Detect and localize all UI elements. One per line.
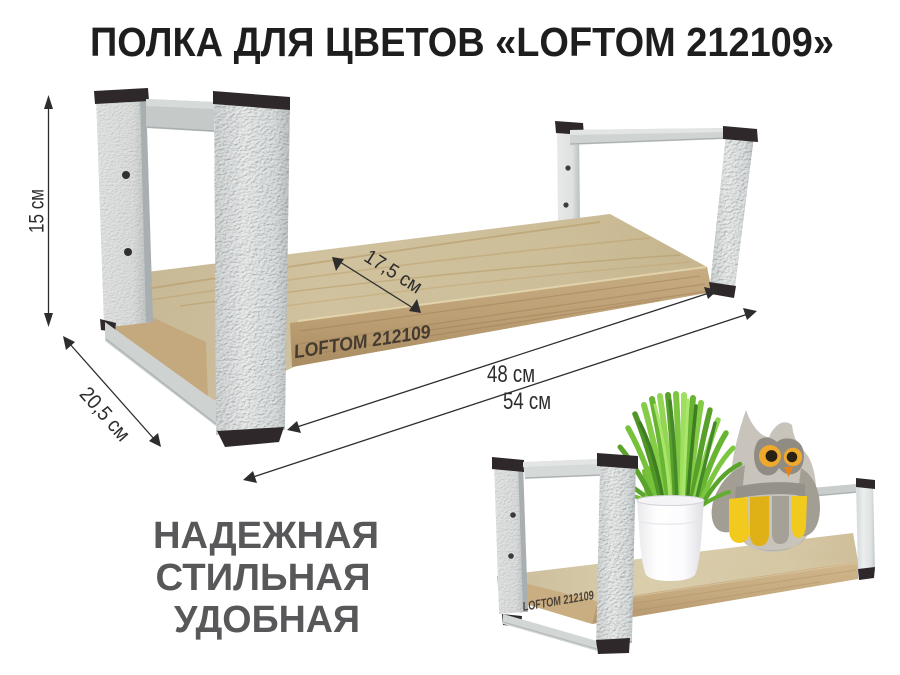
svg-text:15 см: 15 см [26,189,49,233]
svg-text:ПОЛКА ДЛЯ ЦВЕТОВ «LOFTOM 21210: ПОЛКА ДЛЯ ЦВЕТОВ «LOFTOM 212109» [90,19,834,65]
svg-text:48 см: 48 см [487,361,535,388]
svg-text:СТИЛЬНАЯ: СТИЛЬНАЯ [156,557,371,599]
svg-text:УДОБНАЯ: УДОБНАЯ [174,599,360,641]
svg-text:54 см: 54 см [503,388,551,415]
svg-text:НАДЕЖНАЯ: НАДЕЖНАЯ [153,515,379,557]
